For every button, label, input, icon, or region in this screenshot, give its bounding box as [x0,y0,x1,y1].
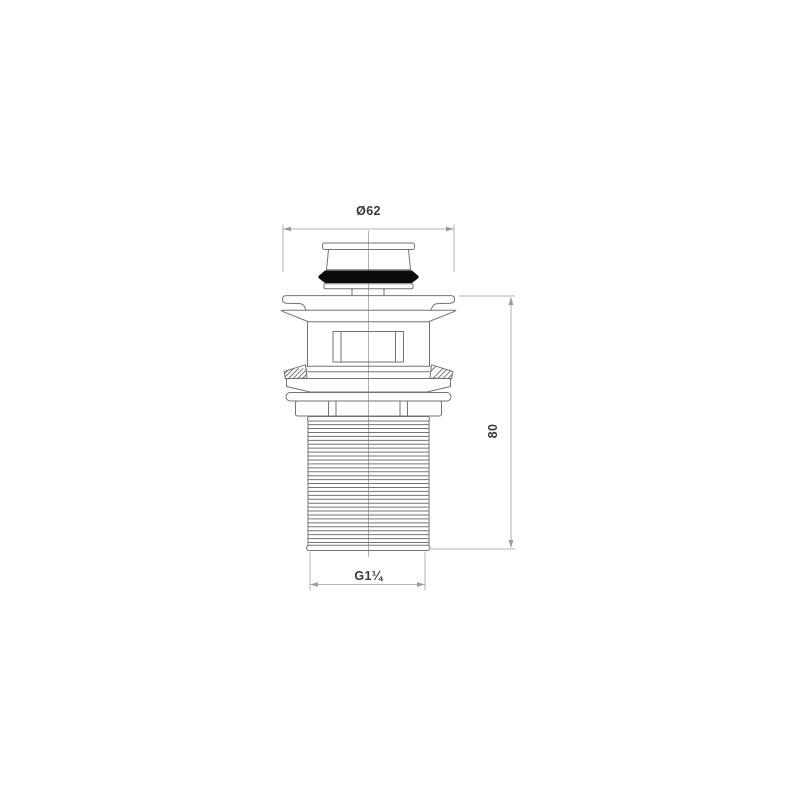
seal-ring [319,271,419,284]
arrow-left-icon [283,227,291,232]
technical-drawing-canvas: Ø62 [0,0,800,800]
dimension-thread: G1¼ [310,553,425,591]
basin-waste-drawing: Ø62 [0,0,800,800]
threaded-tail [307,417,431,551]
hatch-lines-left [285,369,307,379]
dimension-height: 80 [431,296,515,549]
dimension-diameter-label: Ø62 [356,204,381,218]
backnut-flats [329,401,408,416]
arrow-right-icon [446,227,454,232]
arrow-up-icon [509,297,514,305]
arrow-down-icon [509,540,514,548]
dimension-height-label: 80 [486,424,500,439]
arrow-right-icon [417,582,425,587]
dimension-thread-label: G1¼ [354,569,383,583]
plug-stem [352,289,384,296]
arrow-left-icon [310,582,318,587]
